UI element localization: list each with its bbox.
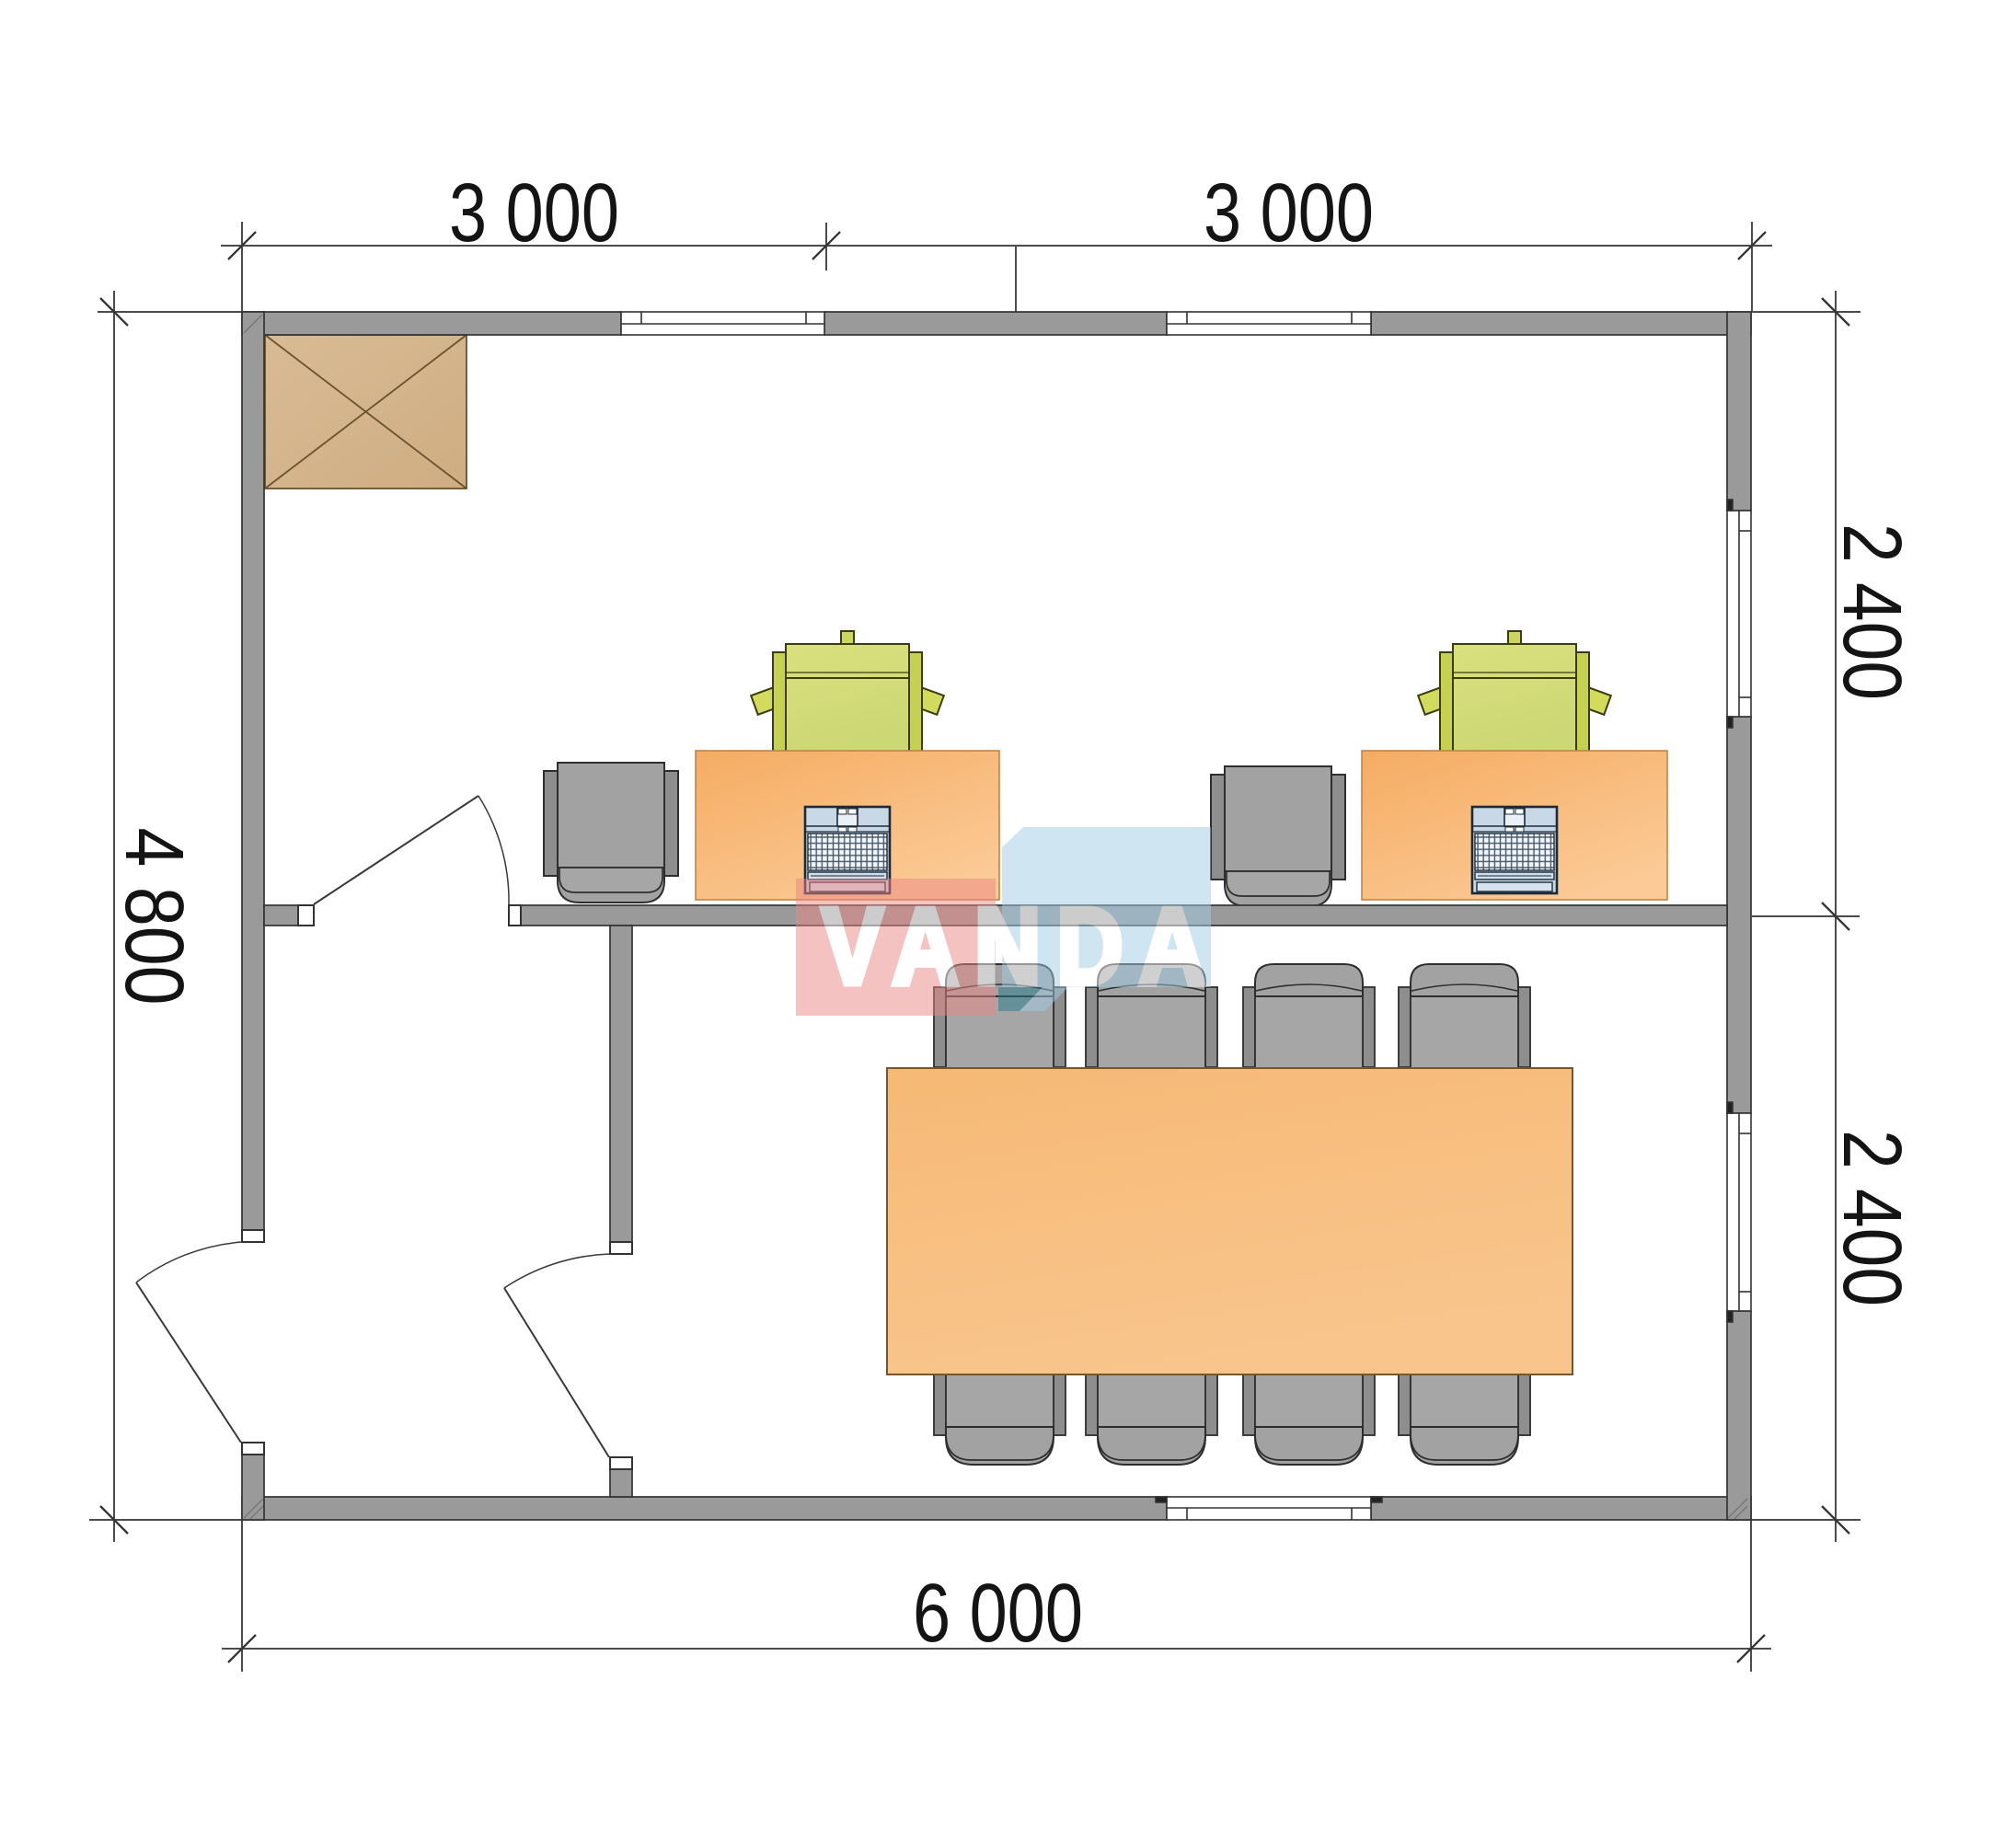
svg-text:6 000: 6 000 [913, 1568, 1083, 1660]
svg-text:VANDA: VANDA [822, 886, 1221, 1006]
svg-text:4 800: 4 800 [108, 828, 200, 1006]
svg-text:2 400: 2 400 [1826, 523, 1918, 700]
svg-text:3 000: 3 000 [449, 167, 619, 259]
svg-text:2 400: 2 400 [1826, 1130, 1918, 1306]
svg-text:3 000: 3 000 [1204, 167, 1374, 259]
